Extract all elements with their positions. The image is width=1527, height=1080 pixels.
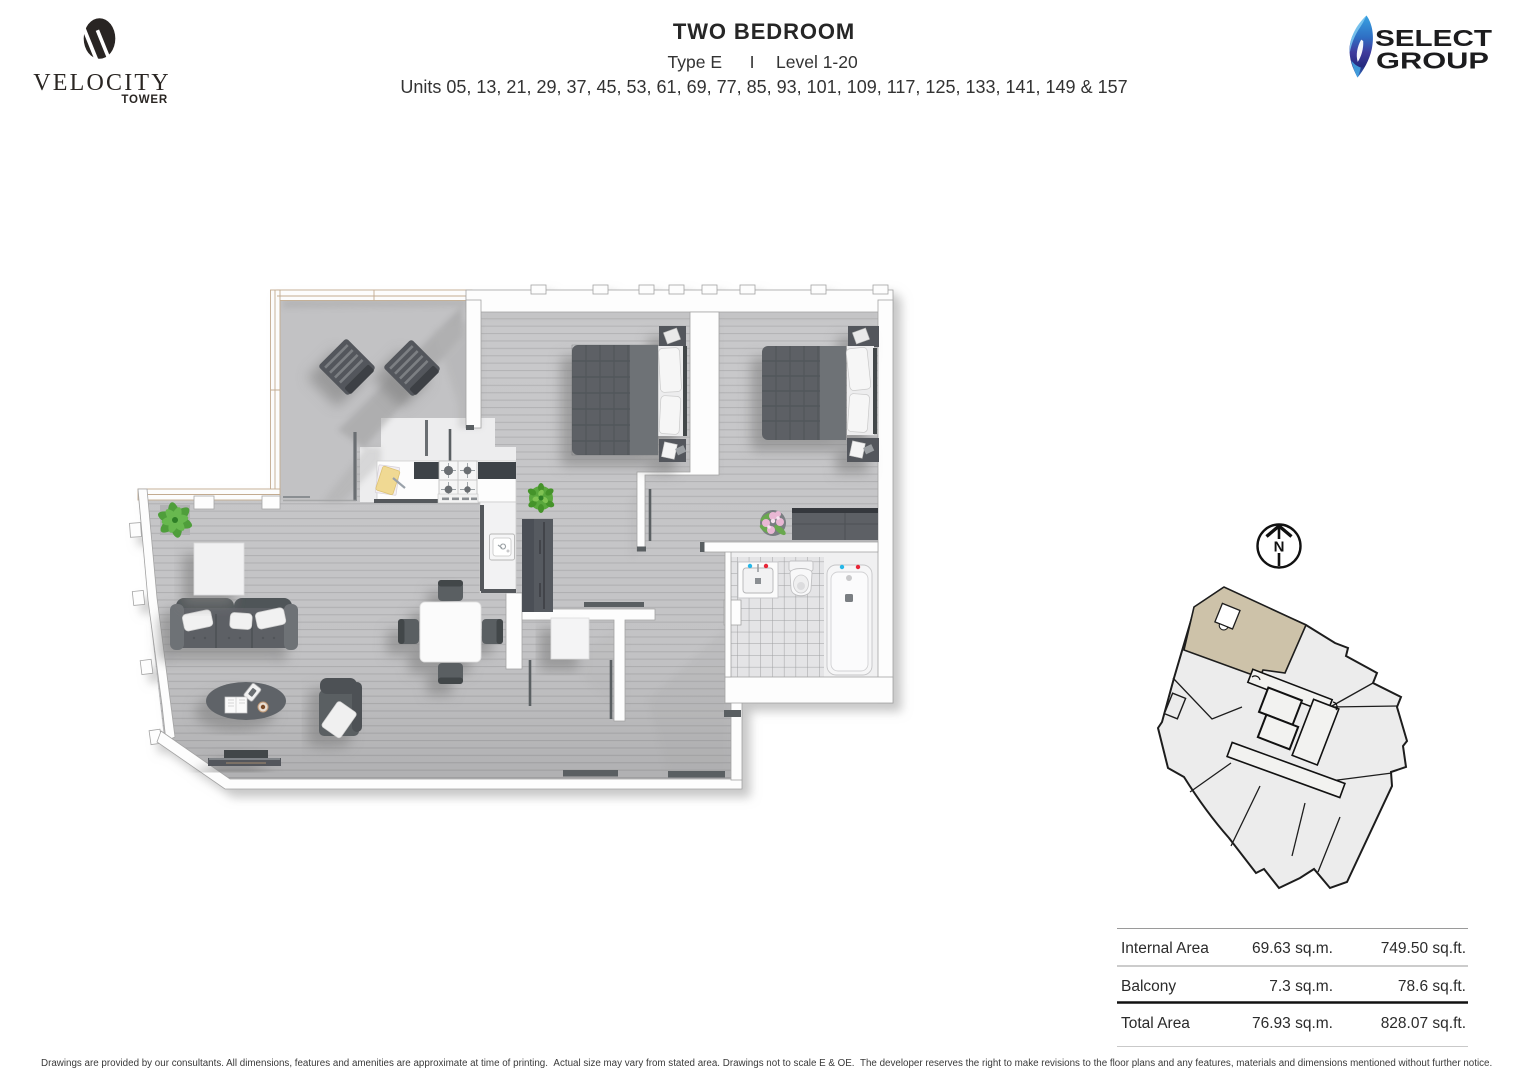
svg-text:Type E: Type E: [668, 52, 722, 72]
svg-text:7.3 sq.m.: 7.3 sq.m.: [1269, 978, 1333, 995]
svg-text:I: I: [750, 52, 755, 72]
svg-text:828.07 sq.ft.: 828.07 sq.ft.: [1381, 1015, 1466, 1032]
svg-text:749.50 sq.ft.: 749.50 sq.ft.: [1381, 940, 1466, 957]
svg-text:Total Area: Total Area: [1121, 1015, 1190, 1032]
svg-text:GROUP: GROUP: [1376, 48, 1489, 74]
svg-text:N: N: [1274, 539, 1285, 556]
svg-text:69.63 sq.m.: 69.63 sq.m.: [1252, 940, 1333, 957]
svg-text:TWO BEDROOM: TWO BEDROOM: [673, 19, 855, 44]
svg-text:Level 1-20: Level 1-20: [776, 52, 858, 72]
svg-text:VELOCITY: VELOCITY: [33, 70, 171, 96]
svg-text:Balcony: Balcony: [1121, 978, 1176, 995]
svg-text:Drawings are provided by our c: Drawings are provided by our consultants…: [41, 1058, 1492, 1069]
svg-text:Units 05, 13, 21, 29, 37, 45,: Units 05, 13, 21, 29, 37, 45, 53, 61, 69…: [400, 77, 1127, 97]
svg-text:78.6 sq.ft.: 78.6 sq.ft.: [1398, 978, 1466, 995]
svg-text:TOWER: TOWER: [121, 94, 168, 106]
svg-text:76.93 sq.m.: 76.93 sq.m.: [1252, 1015, 1333, 1032]
svg-text:Internal Area: Internal Area: [1121, 940, 1209, 957]
